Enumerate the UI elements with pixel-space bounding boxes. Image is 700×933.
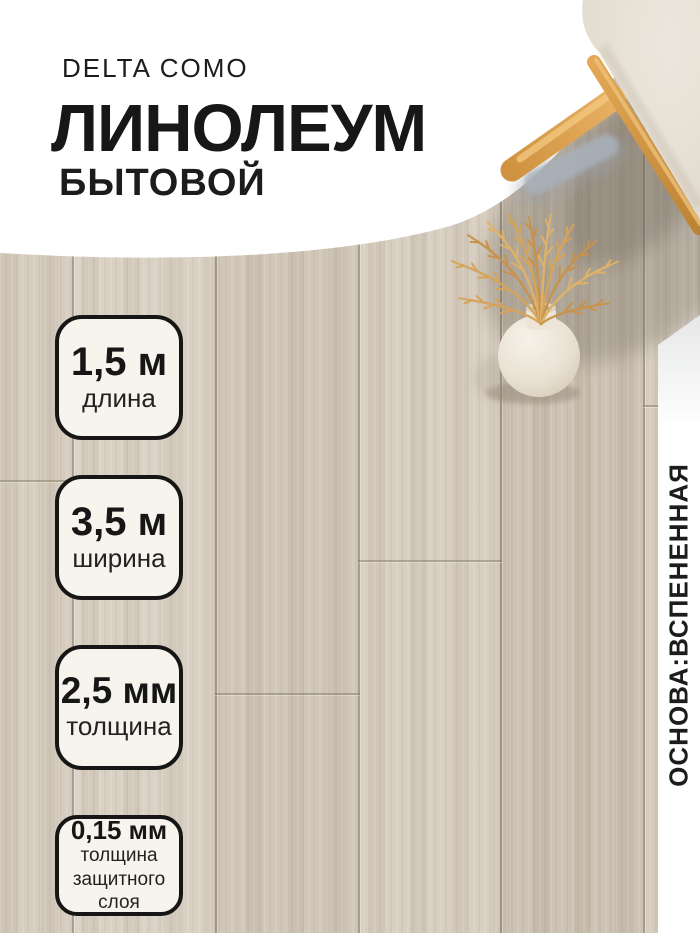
spec-value: 0,15 мм bbox=[71, 817, 167, 844]
spec-label: толщина защитного слоя bbox=[67, 844, 171, 914]
spec-badge-protective-layer: 0,15 мм толщина защитного слоя bbox=[55, 815, 183, 916]
product-title: ЛИНОЛЕУМ bbox=[51, 90, 426, 167]
spec-value: 1,5 м bbox=[71, 341, 167, 383]
base-type-label: ОСНОВА:ВСПЕНЕННАЯ bbox=[664, 463, 695, 787]
product-card: DELTA COMO ЛИНОЛЕУМ БЫТОВОЙ 1,5 м длина … bbox=[0, 0, 700, 933]
brand-label: DELTA COMO bbox=[62, 53, 249, 84]
spec-label: толщина bbox=[66, 711, 171, 743]
product-subtitle: БЫТОВОЙ bbox=[59, 162, 266, 205]
spec-value: 3,5 м bbox=[71, 501, 167, 543]
spec-badge-length: 1,5 м длина bbox=[55, 315, 183, 440]
spec-badge-thickness: 2,5 мм толщина bbox=[55, 645, 183, 770]
spec-badge-width: 3,5 м ширина bbox=[55, 475, 183, 600]
spec-label: длина bbox=[82, 383, 156, 415]
spec-value: 2,5 мм bbox=[61, 672, 177, 711]
spec-label: ширина bbox=[72, 543, 165, 575]
